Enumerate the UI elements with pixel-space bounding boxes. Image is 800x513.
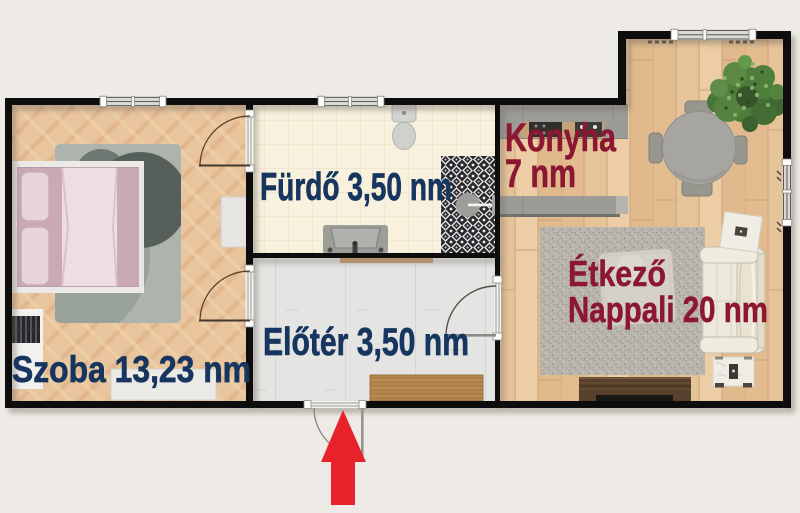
svg-text:Étkező: Étkező — [568, 253, 666, 294]
svg-text:Fürdő 3,50 nm: Fürdő 3,50 nm — [260, 166, 452, 209]
svg-text:7 nm: 7 nm — [505, 152, 576, 196]
svg-text:Szoba 13,23 nm: Szoba 13,23 nm — [12, 349, 251, 390]
svg-text:Előtér 3,50 nm: Előtér 3,50 nm — [263, 321, 469, 364]
svg-text:Nappali 20 nm: Nappali 20 nm — [568, 289, 768, 330]
